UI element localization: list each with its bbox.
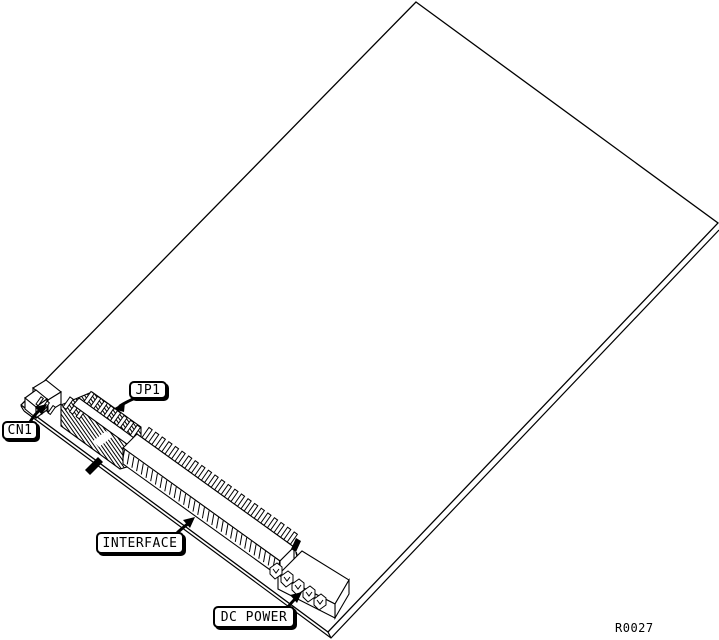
cn1-label: CN1 xyxy=(2,421,38,440)
interface-label: INTERFACE xyxy=(96,532,184,554)
figure-canvas: CN1 JP1 INTERFACE DC POWER R0027 xyxy=(0,0,719,640)
dc-power-label: DC POWER xyxy=(213,606,295,628)
jp1-label: JP1 xyxy=(129,381,167,399)
figure-reference: R0027 xyxy=(615,621,654,635)
